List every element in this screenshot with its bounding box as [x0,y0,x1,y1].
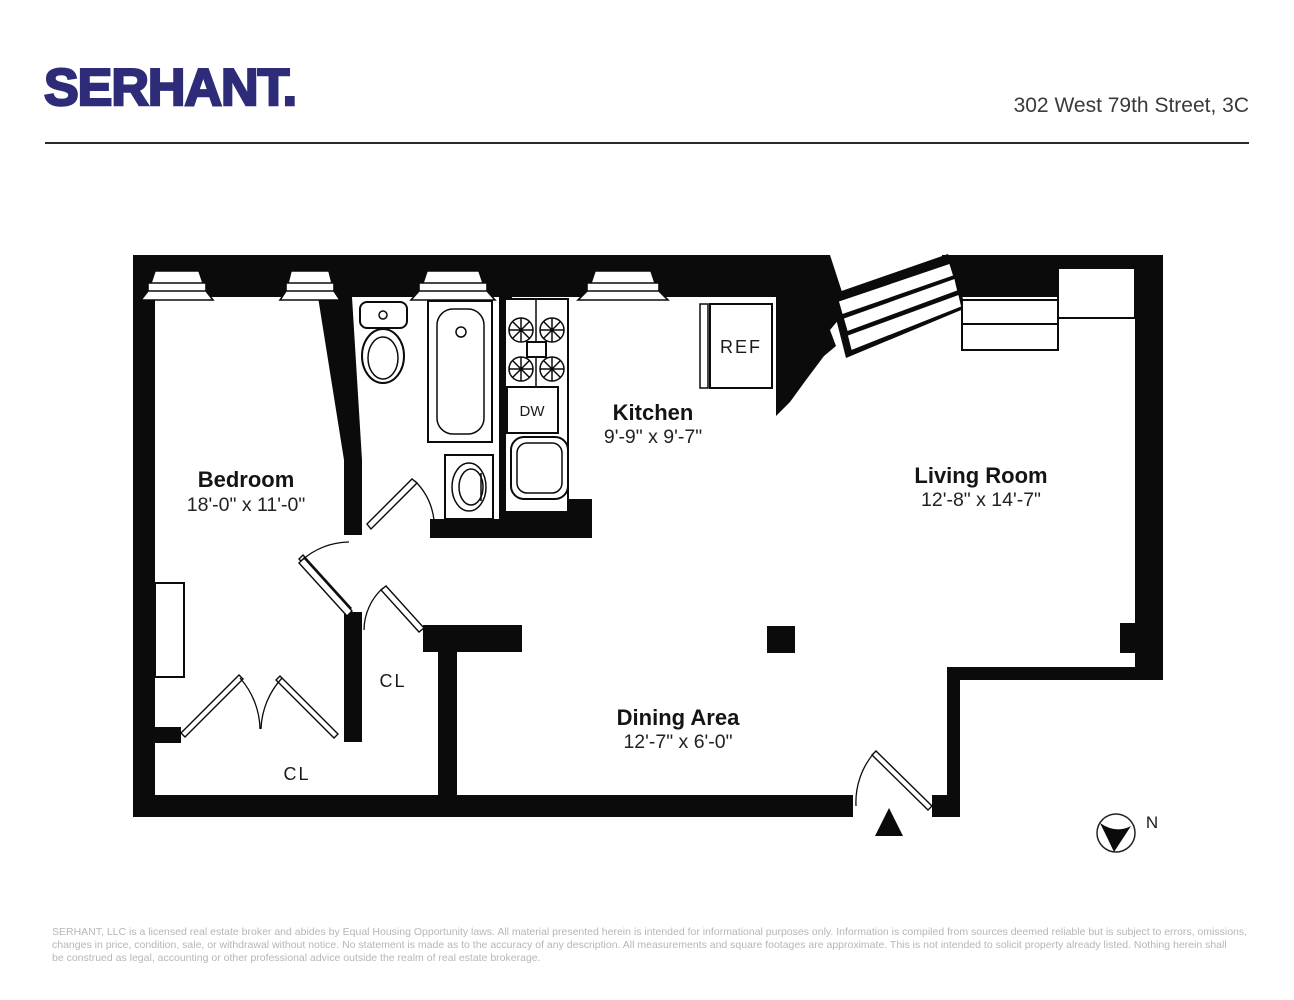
wall-segment [1135,255,1163,680]
wall-segment [947,667,1163,680]
living-room-dimensions: 12'-8" x 14'-7" [921,489,1041,511]
closet-door [364,586,424,632]
wall-segment [438,652,457,817]
dishwasher-label: DW [520,403,546,420]
door-swing-arc [240,678,260,729]
burner-icon [509,318,533,342]
bathtub [428,301,492,442]
compass-north-label: N [1146,813,1158,832]
window-seat [962,324,1058,350]
burner-icon [540,318,564,342]
floor-plan-sheet: SERHANT. 302 West 79th Street, 3C [0,0,1294,1000]
refrigerator-label: REF [720,337,762,357]
wall-segment [430,519,592,538]
ac-unit [1058,268,1135,318]
toilet [360,302,407,383]
wall-segment [133,795,853,817]
entry-door [856,751,932,836]
compass: N [1097,813,1158,852]
bedroom-door [299,542,353,617]
dishwasher: DW [507,387,558,433]
burner-icon [540,357,564,381]
radiator [155,583,184,677]
disclaimer-line: SERHANT, LLC is a licensed real estate b… [52,926,1252,939]
door-swing-arc [301,542,349,561]
refrigerator: REF [700,304,772,388]
window-seat [962,300,1058,324]
door-swing-arc [415,481,434,520]
burner-icon [509,357,533,381]
door-leaf [181,675,243,737]
kitchen-label: Kitchen [613,400,694,425]
door-swing-arc [364,588,383,630]
disclaimer-line: changes in price, condition, sale, or wi… [52,939,1252,952]
wall-segment [947,667,960,817]
column [767,626,795,653]
door-leaf [872,751,932,810]
door-leaf [276,676,338,738]
closet-label: CL [379,671,406,691]
room-labels: Bedroom 18'-0" x 11'-0" Kitchen 9'-9" x … [187,400,1048,784]
bedroom-dimensions: 18'-0" x 11'-0" [187,494,306,516]
dining-area-dimensions: 12'-7" x 6'-0" [623,731,732,753]
door-swing-arc [856,753,874,806]
door-leaf [381,586,424,632]
wall-segment [155,727,181,743]
disclaimer-line: be construed as legal, accounting or oth… [52,952,1252,965]
wall-segment [133,255,155,817]
wall-segment [776,255,842,416]
refrigerator-door [700,304,708,388]
stove-control [527,342,546,357]
bathroom-sink [445,455,493,519]
living-room-label: Living Room [914,463,1047,488]
floor-plan: DW REF [0,0,1294,1000]
wall-segment [344,612,362,742]
door-swing-arc [261,678,282,729]
kitchen-dimensions: 9'-9" x 9'-7" [604,426,702,448]
bedroom-label: Bedroom [198,467,295,492]
entrance-marker-icon [875,808,903,836]
wall-segment [423,625,522,652]
closet-double-doors [181,675,338,738]
kitchen-sink [511,437,568,499]
disclaimer: SERHANT, LLC is a licensed real estate b… [52,926,1252,965]
toilet-tank [360,302,407,328]
door-leaf [367,479,417,529]
closet-label: CL [283,764,310,784]
wall-segment [318,297,362,535]
wall-notch [1120,623,1135,653]
door-leaf [299,558,352,616]
bathroom-door [367,479,434,529]
dining-area-label: Dining Area [617,705,740,730]
